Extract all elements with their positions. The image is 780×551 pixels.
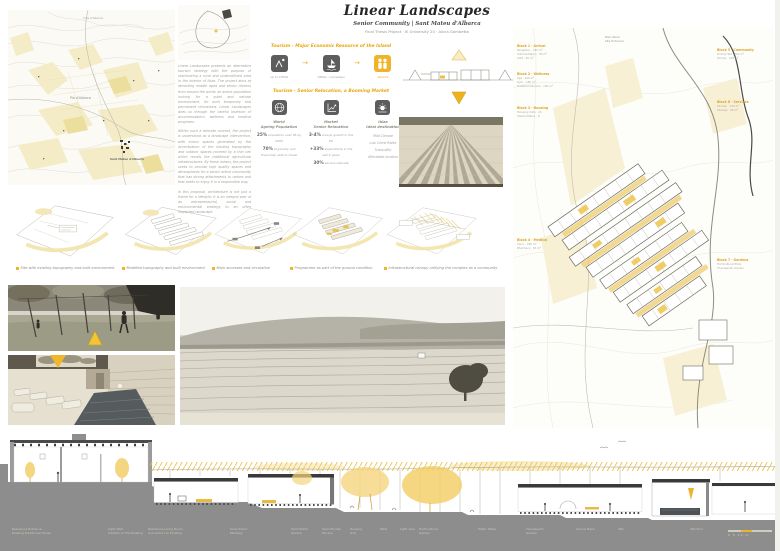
buried-building-1	[154, 478, 238, 504]
intro-paragraph-1: Linear Landscapes presents an alternativ…	[178, 64, 251, 125]
sketch-lines	[403, 70, 515, 80]
market-stats: World Ageing Population 25%population ov…	[256, 120, 406, 170]
page-title: Linear Landscapes	[327, 4, 507, 19]
concept-section-sketch	[395, 48, 523, 110]
sketch-highlight	[440, 76, 445, 79]
process-caption-1: Site with existing topography and built …	[16, 266, 138, 270]
title-block: Linear Landscapes Senior Community | San…	[327, 4, 507, 34]
buried-building-2	[248, 474, 334, 505]
legend-items: Clinic · 260 m² Pharmacy · 45 m²	[517, 243, 571, 251]
globe-icon	[272, 100, 287, 115]
presentation-board: Cala d'Albarca Pla d'Albarca Sant Mateu …	[0, 0, 780, 551]
section-label: Semi Public Pathway	[230, 527, 274, 535]
section-label: Residence Living Room Connection to Exis…	[148, 527, 192, 535]
timeline-step-rural: up to 1950s	[262, 55, 296, 79]
process-diagram-5	[382, 200, 480, 260]
stat: +33%expenditure in the last 5 years	[308, 147, 354, 157]
triangle-down-marker	[452, 92, 466, 104]
tourism-analysis: Tourism - Major Economic Resource of the…	[256, 44, 406, 170]
tourism-timeline: up to 1950s → 1960s - nowadays →	[256, 55, 406, 79]
spa-pool-render	[8, 355, 175, 425]
buried-building-3	[518, 484, 642, 513]
process-diagram-1	[8, 200, 120, 260]
process-diagram-4	[288, 200, 386, 260]
plan-legend-block: Block 6 · Services Kitchen · 150 m² Stor…	[717, 100, 771, 113]
process-caption-4: Programme as part of the ground conditio…	[290, 266, 392, 270]
market-heading: Tourism - Senior Relocation, a Booming M…	[256, 89, 406, 94]
scale-bar: 0 5 10 m	[728, 530, 772, 537]
intro-text: Linear Landscapes presents an alternativ…	[178, 64, 251, 219]
stat: 3-4%annual growth in the EU	[308, 133, 354, 143]
caption-bullet-icon	[290, 267, 293, 270]
stat: 25%population over 65 by 2050	[256, 133, 302, 143]
legend-items: Spa · 420 m² Gym · 180 m² Treatment Room…	[517, 77, 571, 89]
byline: Final Thesis Project · IE University 20 …	[327, 29, 507, 34]
legend-items: Reception · 120 m² Administration · 85 m…	[517, 49, 571, 61]
plan-legend-block: Block 4 · Medical Clinic · 260 m² Pharma…	[517, 238, 571, 251]
birds	[600, 441, 626, 448]
inset-map	[178, 5, 250, 60]
inset-site-marker	[215, 30, 218, 33]
section-label: SPA	[618, 527, 662, 531]
section-label: Residence Entrance Existing Traditional …	[12, 527, 56, 535]
section-label: Horticultural Garden	[419, 527, 463, 535]
farmhouse	[418, 353, 425, 358]
crop-rows-photo	[399, 117, 503, 187]
legend-items: Dining Hall · 310 m² Library · 120 m²	[717, 53, 771, 61]
longitudinal-section: Residence Entrance Existing Traditional …	[0, 430, 780, 551]
plan-legend-block: Block 2 · Wellness Spa · 420 m² Gym · 18…	[517, 72, 571, 89]
stat: 70%physically and financially able to tr…	[256, 147, 302, 157]
growth-chart-icon	[324, 100, 339, 115]
arrow-right-icon: →	[302, 60, 308, 67]
map-label-pla: Pla d'Albarca	[70, 96, 91, 100]
plan-road-label: Main Road Site Entrance	[605, 36, 624, 43]
market-icons-row	[256, 100, 406, 115]
caption-bullet-icon	[384, 267, 387, 270]
scale-bar-graphic	[728, 530, 772, 532]
process-diagram-2	[120, 200, 220, 260]
process-caption-5: Infrastructural canopy unifying the comp…	[384, 266, 509, 270]
section-label: Public Plaza	[478, 527, 522, 531]
foreground-band	[180, 413, 505, 425]
site-plan: Block 1 · Arrival Reception · 120 m² Adm…	[513, 28, 773, 428]
plan-legend-block: Block 5 · Community Dining Hall · 310 m²…	[717, 48, 771, 61]
plan-legend-block: Block 7 · Gardens Horticultural Plots Th…	[717, 258, 771, 271]
legend-items: Housing Units · 24 Shared Patios · 8	[517, 111, 571, 119]
section-label: Therapeutic Garden	[526, 527, 570, 535]
boat-icon	[323, 55, 340, 72]
triangle-up-marker	[452, 50, 466, 60]
board-edge-shadow	[775, 0, 780, 551]
stat-column-market: Market Senior Relocation 3-4%annual grow…	[308, 120, 354, 170]
canopy-structure-photo	[8, 285, 175, 351]
economy-heading: Tourism - Major Economic Resource of the…	[256, 44, 406, 49]
sun-destination-icon	[375, 100, 390, 115]
scale-bar-label: 0 5 10 m	[728, 533, 772, 537]
shrubs	[350, 506, 474, 512]
caption-bullet-icon	[16, 267, 19, 270]
stat-column-world: World Ageing Population 25%population ov…	[256, 120, 302, 170]
section-label: Arrival Plaza	[576, 527, 620, 531]
far-right-building	[712, 483, 780, 514]
map-label-village: Sant Mateu d'Albarca	[110, 157, 144, 161]
intro-paragraph-2: Within such a delicate context, the proj…	[178, 129, 251, 185]
seniors-icon	[374, 55, 391, 72]
page-subtitle: Senior Community | Sant Mateu d'Albarca	[327, 21, 507, 27]
plan-legend-block: Block 1 · Arrival Reception · 120 m² Adm…	[517, 44, 571, 61]
spa-section	[652, 479, 710, 516]
arrow-right-icon: →	[354, 60, 360, 67]
timeline-step-mass-tourism: 1960s - nowadays	[314, 55, 348, 79]
map-label-cala: Cala d'Albarca	[83, 16, 103, 20]
stat: 30%seniors relocate	[308, 161, 354, 167]
caption-bullet-icon	[122, 267, 125, 270]
pool-duck	[118, 384, 122, 388]
legend-items: Kitchen · 150 m² Storage · 90 m²	[717, 105, 771, 113]
landscape-panorama-photo	[180, 287, 505, 425]
territory-map: Cala d'Albarca Pla d'Albarca Sant Mateu …	[8, 10, 175, 185]
plan-legend-block: Block 3 · Housing Housing Units · 24 Sha…	[517, 106, 571, 119]
existing-house-section	[10, 434, 152, 482]
legend-items: Horticultural Plots Therapeutic Garden	[717, 263, 771, 271]
section-label: Light Well Addition to the Existing	[108, 527, 152, 535]
rural-era-icon	[271, 55, 288, 72]
caption-bullet-icon	[212, 267, 215, 270]
